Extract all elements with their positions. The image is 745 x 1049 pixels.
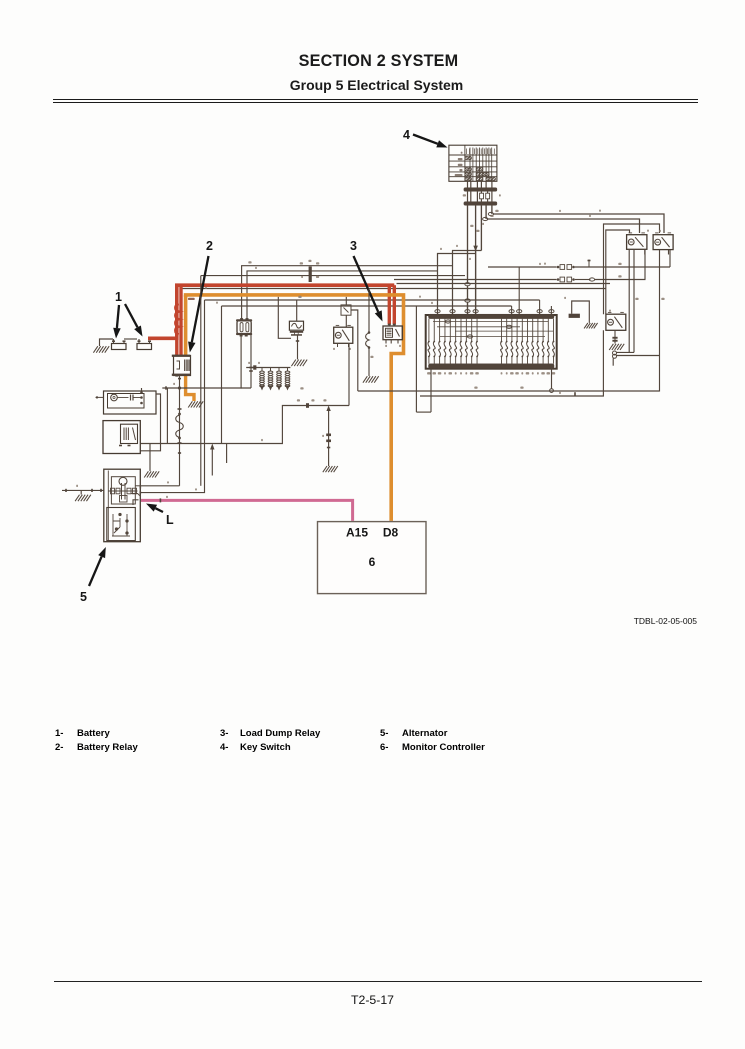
svg-text:1: 1 (115, 290, 122, 304)
svg-text:6: 6 (369, 555, 376, 569)
svg-text:3: 3 (350, 239, 357, 253)
svg-text:2: 2 (206, 239, 213, 253)
svg-text:D8: D8 (383, 526, 399, 540)
svg-text:4: 4 (403, 128, 410, 142)
svg-text:A15: A15 (346, 526, 368, 540)
svg-text:5: 5 (80, 590, 87, 604)
svg-text:L: L (166, 513, 174, 527)
